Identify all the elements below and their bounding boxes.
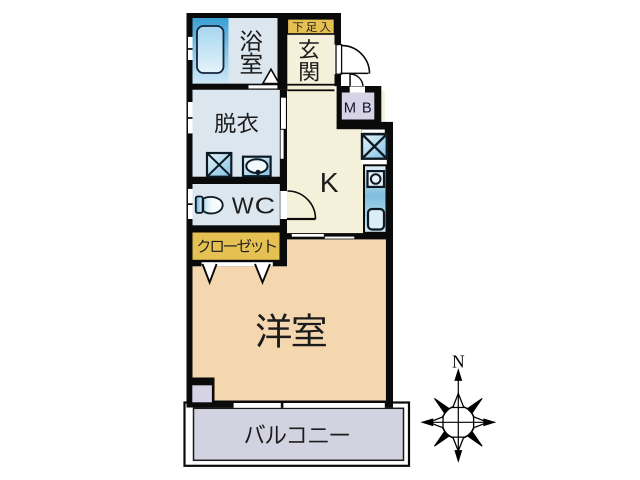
svg-text:MB: MB bbox=[344, 100, 378, 116]
svg-text:W: W bbox=[232, 192, 254, 218]
svg-text:K: K bbox=[320, 166, 339, 198]
svg-text:C: C bbox=[255, 194, 276, 219]
svg-text:N: N bbox=[452, 352, 465, 372]
